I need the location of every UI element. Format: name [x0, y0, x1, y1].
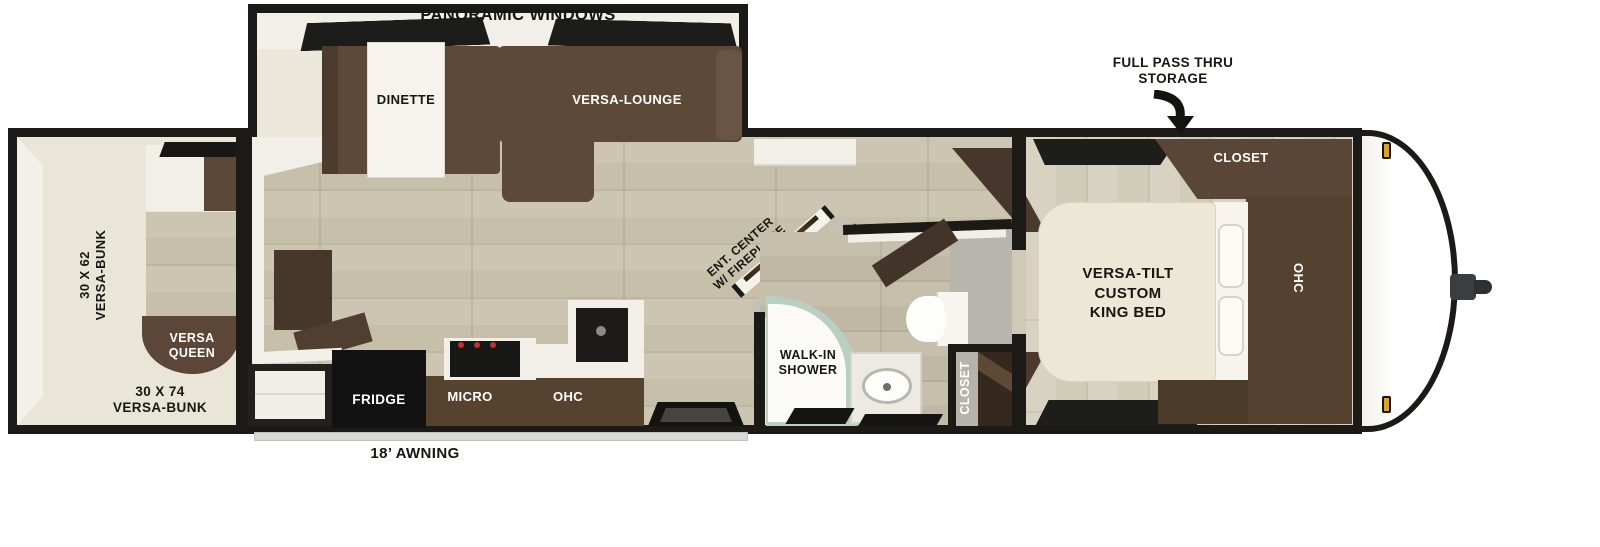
- versa-lounge-chaise: [502, 140, 594, 202]
- king-bed-label: VERSA-TILT CUSTOM KING BED: [1046, 264, 1210, 323]
- stove-knob-icon: [490, 342, 496, 348]
- rv-floorplan: PANORAMIC WINDOWS 30 X 62 VERSA-BUNK VER…: [0, 0, 1600, 547]
- hitch-tongue-icon: [1474, 280, 1492, 294]
- bath-mat: [859, 414, 943, 425]
- versa-queen-label: VERSA QUEEN: [147, 331, 237, 361]
- pillow-icon: [1218, 224, 1244, 288]
- entry-step-well: [248, 364, 332, 426]
- bath-left-wall: [754, 312, 765, 427]
- bedroom-closet-label: CLOSET: [1196, 150, 1286, 166]
- kitchen-ohc-label: OHC: [528, 389, 608, 405]
- versa-lounge-label: VERSA-LOUNGE: [542, 92, 712, 108]
- dinette-label: DINETTE: [367, 92, 445, 108]
- bath-drain-icon: [883, 383, 891, 391]
- fridge-label: FRIDGE: [332, 392, 426, 408]
- counter-strip: [536, 344, 572, 378]
- awning-bar: [254, 432, 748, 441]
- bedroom-ohc: [1246, 196, 1352, 424]
- dinette-bench-back: [322, 46, 338, 174]
- hitch-coupler-icon: [1450, 274, 1476, 300]
- entry-step-divider: [255, 393, 325, 395]
- bedroom-window-top-icon: [1030, 139, 1178, 165]
- living-tv-cabinet: [274, 250, 332, 330]
- dinette-table: [367, 42, 445, 178]
- bunk-room-floor: [146, 212, 238, 324]
- micro-label: MICRO: [430, 389, 510, 405]
- bunk-room-tv-icon: [159, 142, 240, 157]
- clearance-light-icon: [1382, 142, 1391, 159]
- trailer-nose: [1362, 130, 1458, 432]
- bed-foot-bench: [1158, 380, 1248, 424]
- bunk-room-rear-wall: [17, 137, 43, 425]
- bedroom-ohc-label: OHC: [1290, 248, 1306, 308]
- bunk-bottom-label: 30 X 74 VERSA-BUNK: [95, 384, 225, 416]
- panoramic-windows-label: PANORAMIC WINDOWS: [388, 6, 648, 26]
- stove-knob-icon: [474, 342, 480, 348]
- bath-closet-wall-top: [948, 344, 1012, 352]
- stove-knob-icon: [458, 342, 464, 348]
- bath-mat: [785, 408, 854, 424]
- bunk-left-label: 30 X 62 VERSA-BUNK: [77, 200, 117, 350]
- bedroom-doorway: [1012, 250, 1026, 334]
- awning-label: 18’ AWNING: [345, 445, 485, 463]
- walk-in-shower-label: WALK-IN SHOWER: [766, 348, 850, 378]
- walkway-cabinet: [754, 139, 856, 166]
- fridge: [332, 350, 426, 428]
- bath-closet-label: CLOSET: [958, 353, 974, 423]
- pass-thru-storage-label: FULL PASS THRU STORAGE: [1088, 55, 1258, 87]
- toilet-bowl-icon: [906, 296, 946, 342]
- bath-closet-wall-left: [948, 344, 956, 426]
- storage-arrow-icon: [1150, 90, 1198, 134]
- entry-door-mat-inner: [660, 408, 732, 422]
- pillow-icon: [1218, 296, 1244, 356]
- faucet-icon: [596, 326, 606, 336]
- versa-lounge-arm: [716, 50, 742, 140]
- clearance-light-icon: [1382, 396, 1391, 413]
